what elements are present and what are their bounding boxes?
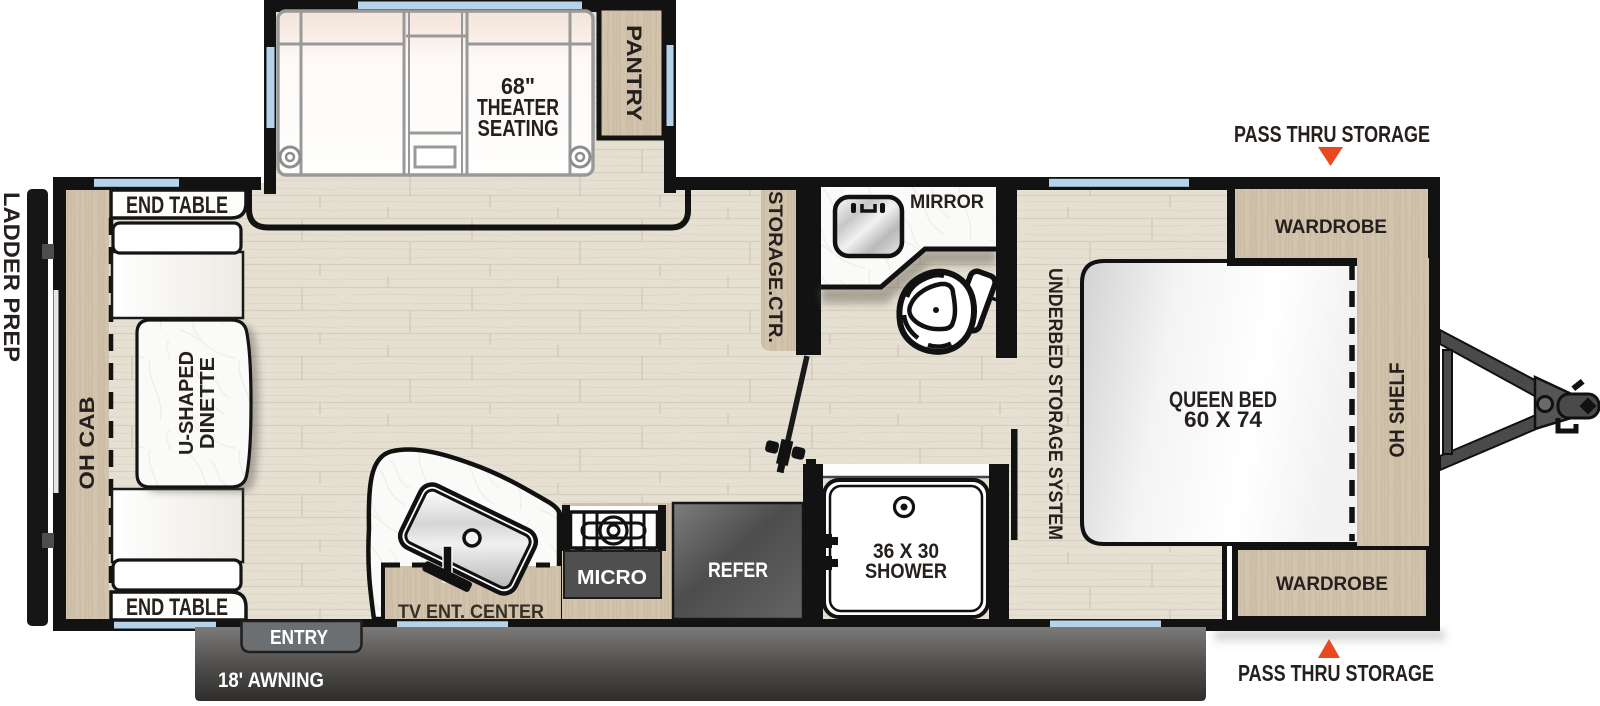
svg-text:DINETTE: DINETTE bbox=[197, 357, 219, 449]
svg-text:ENTRY: ENTRY bbox=[270, 627, 329, 649]
svg-text:WARDROBE: WARDROBE bbox=[1275, 216, 1387, 238]
svg-text:TV ENT. CENTER: TV ENT. CENTER bbox=[398, 602, 544, 623]
svg-text:OH SHELF: OH SHELF bbox=[1386, 362, 1409, 457]
svg-text:60 X 74: 60 X 74 bbox=[1184, 407, 1263, 432]
svg-text:END TABLE: END TABLE bbox=[126, 594, 228, 621]
svg-text:STORAGE.CTR.: STORAGE.CTR. bbox=[764, 191, 786, 343]
svg-text:MIRROR: MIRROR bbox=[910, 192, 984, 213]
svg-text:SEATING: SEATING bbox=[478, 115, 559, 141]
svg-text:PASS THRU STORAGE: PASS THRU STORAGE bbox=[1238, 660, 1434, 686]
svg-text:PASS THRU STORAGE: PASS THRU STORAGE bbox=[1234, 121, 1430, 147]
svg-text:PANTRY: PANTRY bbox=[622, 25, 645, 121]
svg-text:LADDER PREP: LADDER PREP bbox=[0, 192, 24, 362]
svg-text:END TABLE: END TABLE bbox=[126, 192, 228, 219]
svg-text:REFER: REFER bbox=[708, 559, 768, 582]
svg-text:OH CAB: OH CAB bbox=[76, 397, 99, 490]
svg-text:U-SHAPED: U-SHAPED bbox=[176, 351, 198, 455]
svg-text:SHOWER: SHOWER bbox=[865, 560, 947, 583]
svg-text:WARDROBE: WARDROBE bbox=[1276, 573, 1388, 595]
svg-text:18' AWNING: 18' AWNING bbox=[218, 669, 324, 692]
svg-text:MICRO: MICRO bbox=[577, 567, 647, 589]
svg-text:UNDERBED STORAGE SYSTEM: UNDERBED STORAGE SYSTEM bbox=[1044, 268, 1065, 540]
